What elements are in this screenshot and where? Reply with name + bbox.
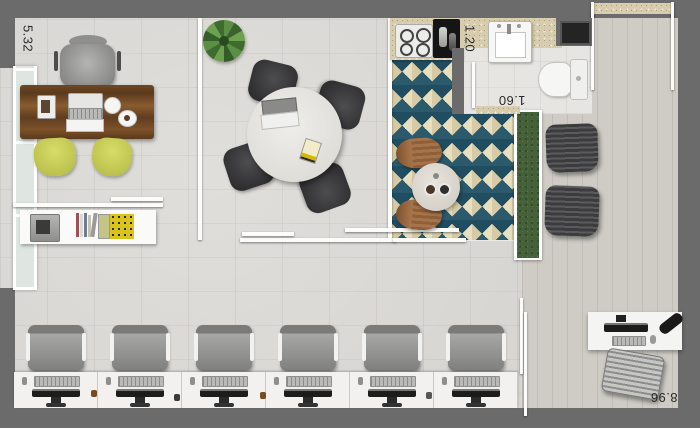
cafe-table <box>412 163 460 211</box>
keyboard <box>370 376 416 387</box>
dimension-label-bathroom-width: 1.20 <box>463 19 478 59</box>
wall-office-meeting <box>198 18 202 240</box>
monitor-base <box>214 403 234 407</box>
desk-item <box>426 392 432 399</box>
cup <box>424 183 437 196</box>
monitor <box>32 389 80 397</box>
floor-plan: 5.32 1.20 1.60 8.96 <box>0 0 700 428</box>
lounge-armchair-2 <box>544 185 600 237</box>
workstation-chair <box>112 325 168 371</box>
workstation-chair <box>448 325 504 371</box>
printer-screen <box>36 220 50 234</box>
cup <box>438 183 451 196</box>
reception-keyboard <box>612 336 646 346</box>
book <box>80 214 83 237</box>
phone <box>190 377 195 385</box>
phone <box>106 377 111 385</box>
monitor <box>116 389 164 397</box>
faucet <box>507 24 511 34</box>
corridor-wall-right <box>671 14 674 90</box>
wall-right <box>678 12 700 428</box>
dimension-label-left: 5.32 <box>21 19 36 59</box>
desk-item <box>260 392 266 399</box>
mouse <box>650 335 656 344</box>
monitor-base <box>298 403 318 407</box>
desk-papers <box>66 119 104 132</box>
wall-meeting-bottom <box>240 238 396 242</box>
monitor <box>200 389 248 397</box>
sink-basin <box>495 32 526 58</box>
reception-partition-b <box>524 312 527 416</box>
monitor-base <box>382 403 402 407</box>
book <box>84 213 87 237</box>
keyboard <box>34 376 80 387</box>
desk-item <box>91 390 97 397</box>
burner <box>400 29 414 43</box>
office-sliding-door <box>111 197 163 201</box>
bottle <box>439 27 447 47</box>
telephone <box>657 311 684 336</box>
photo <box>41 100 50 113</box>
phone <box>22 377 27 385</box>
table-dot <box>433 173 439 179</box>
wall-bottom <box>0 408 700 428</box>
wall-left-upper <box>0 18 15 68</box>
workstation-chair <box>364 325 420 371</box>
bathroom-window <box>560 21 591 45</box>
plant <box>203 20 245 62</box>
workstation-chair <box>196 325 252 371</box>
dimension-label-bathroom-length: 1.60 <box>492 93 532 108</box>
yellow-box <box>110 214 134 239</box>
flush-button <box>576 76 581 81</box>
reception-monitor <box>604 323 648 332</box>
monitor <box>452 389 500 397</box>
monitor-base <box>46 403 66 407</box>
workstation-chair <box>280 325 336 371</box>
phone <box>358 377 363 385</box>
dimension-label-bottom: 8.96 <box>644 390 684 405</box>
book <box>76 213 79 237</box>
tap-knob <box>497 24 501 28</box>
burner <box>400 43 413 56</box>
phone <box>274 377 279 385</box>
chair-armrest-left <box>54 51 58 71</box>
entry-threshold <box>594 3 672 14</box>
monitor <box>284 389 332 397</box>
toilet-tank <box>570 59 588 100</box>
monitor-base <box>466 403 486 407</box>
burner <box>416 43 430 57</box>
reception-partition-a <box>520 298 523 374</box>
keyboard <box>454 376 500 387</box>
chair-body <box>60 44 115 87</box>
lounge-armchair-1 <box>545 123 599 173</box>
monitor <box>368 389 416 397</box>
keyboard <box>118 376 164 387</box>
wall-left-lower <box>0 288 15 410</box>
reception-desk <box>588 312 682 350</box>
workstation-equipment <box>14 372 518 408</box>
printer <box>30 214 60 242</box>
bathroom-door-jamb <box>472 62 475 108</box>
cafe-sliding-door <box>345 228 459 232</box>
desk-item <box>174 394 180 401</box>
phone <box>442 377 447 385</box>
plant-center <box>219 36 229 46</box>
coffee-cup <box>118 110 137 127</box>
bathroom-sink <box>488 21 532 63</box>
chair-armrest-right <box>117 51 121 71</box>
tap-knob <box>517 24 521 28</box>
wall-cafe-bottom <box>393 238 466 242</box>
credenza <box>20 210 156 244</box>
keyboard <box>286 376 332 387</box>
wall-office-bottom <box>13 203 163 207</box>
planter-box <box>514 110 542 260</box>
coffee <box>124 115 130 121</box>
keyboard <box>202 376 248 387</box>
meeting-sliding-door <box>242 232 294 236</box>
executive-chair <box>55 35 120 87</box>
hedge <box>517 112 539 258</box>
desk-lamp <box>104 97 121 114</box>
toilet-bowl <box>538 62 574 97</box>
cooktop <box>395 24 433 58</box>
monitor-base <box>130 403 150 407</box>
workstation-chair <box>28 325 84 371</box>
monitor-back <box>616 315 626 322</box>
burner <box>416 28 431 43</box>
book <box>90 213 97 237</box>
desk-photo-frame <box>37 95 56 119</box>
magazines <box>98 214 110 239</box>
